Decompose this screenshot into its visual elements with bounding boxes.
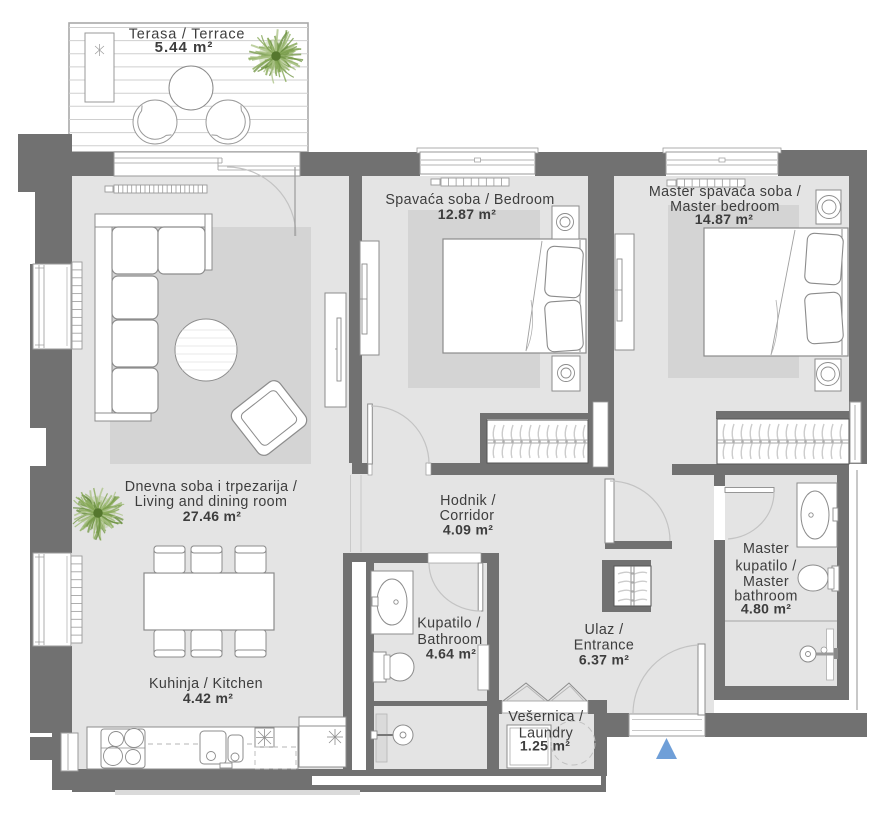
svg-text:Ulaz /: Ulaz / [585, 622, 624, 638]
svg-text:12.87 m²: 12.87 m² [438, 206, 496, 222]
svg-text:4.09 m²: 4.09 m² [443, 522, 493, 538]
svg-text:4.64 m²: 4.64 m² [426, 646, 476, 662]
svg-text:27.46 m²: 27.46 m² [183, 508, 241, 524]
svg-text:Master spavaća soba /: Master spavaća soba / [649, 184, 801, 200]
svg-text:1.25 m²: 1.25 m² [520, 738, 570, 754]
svg-text:4.42 m²: 4.42 m² [183, 690, 233, 706]
svg-text:Kupatilo /: Kupatilo / [417, 616, 481, 632]
svg-text:6.37 m²: 6.37 m² [579, 652, 629, 668]
svg-text:Hodnik /: Hodnik / [440, 493, 496, 509]
svg-text:kupatilo /: kupatilo / [735, 559, 796, 575]
svg-text:5.44 m²: 5.44 m² [155, 39, 214, 56]
svg-text:4.80 m²: 4.80 m² [741, 601, 791, 617]
svg-text:Dnevna soba i trpezarija /: Dnevna soba i trpezarija / [125, 479, 298, 495]
svg-text:14.87 m²: 14.87 m² [695, 211, 753, 227]
svg-text:Master: Master [743, 541, 789, 557]
svg-text:Vešernica /: Vešernica / [508, 709, 583, 725]
